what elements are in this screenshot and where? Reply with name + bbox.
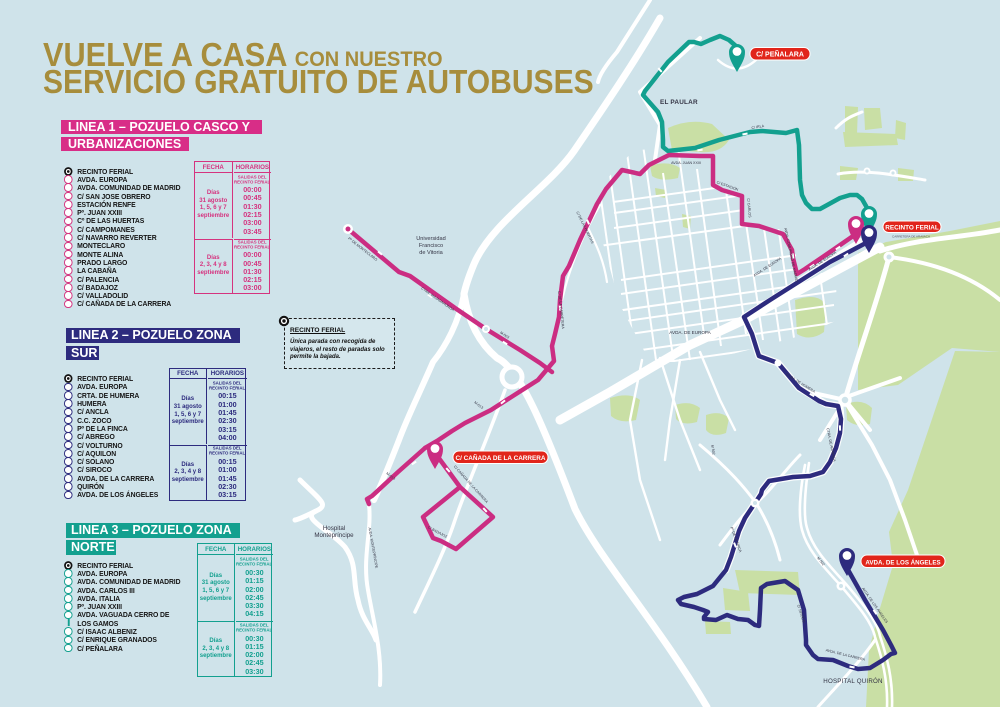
svg-text:C/ PEÑALARA: C/ PEÑALARA: [756, 50, 804, 59]
svg-text:de Vitoria: de Vitoria: [419, 250, 443, 256]
svg-text:M-513: M-513: [473, 400, 483, 409]
svg-text:AVDA. DE EUROPA: AVDA. DE EUROPA: [669, 330, 711, 335]
svg-text:AVDA. DE LOS ÁNGELES: AVDA. DE LOS ÁNGELES: [865, 559, 940, 566]
svg-text:C/ CARLOS: C/ CARLOS: [746, 198, 752, 218]
svg-text:RECINTO FERIAL: RECINTO FERIAL: [885, 225, 939, 232]
svg-text:AVDA. JUAN XXIII: AVDA. JUAN XXIII: [671, 161, 701, 165]
svg-text:CTRA. MAJADAHONDA: CTRA. MAJADAHONDA: [420, 286, 455, 312]
svg-text:AVDA. MONTEPRÍNCIPE: AVDA. MONTEPRÍNCIPE: [367, 527, 378, 569]
svg-text:C/ CAÑADA DE LA CARRERA: C/ CAÑADA DE LA CARRERA: [455, 453, 545, 462]
svg-text:CARRETERA DE ARAVACA: CARRETERA DE ARAVACA: [892, 235, 930, 239]
svg-text:Francisco: Francisco: [419, 243, 443, 249]
svg-text:EL PAULAR: EL PAULAR: [660, 99, 698, 106]
svg-text:Universidad: Universidad: [416, 236, 446, 242]
svg-text:HOSPITAL QUIRÓN: HOSPITAL QUIRÓN: [823, 678, 882, 685]
svg-text:Montepríncipe: Montepríncipe: [314, 532, 354, 539]
svg-text:Hospital: Hospital: [323, 525, 345, 532]
